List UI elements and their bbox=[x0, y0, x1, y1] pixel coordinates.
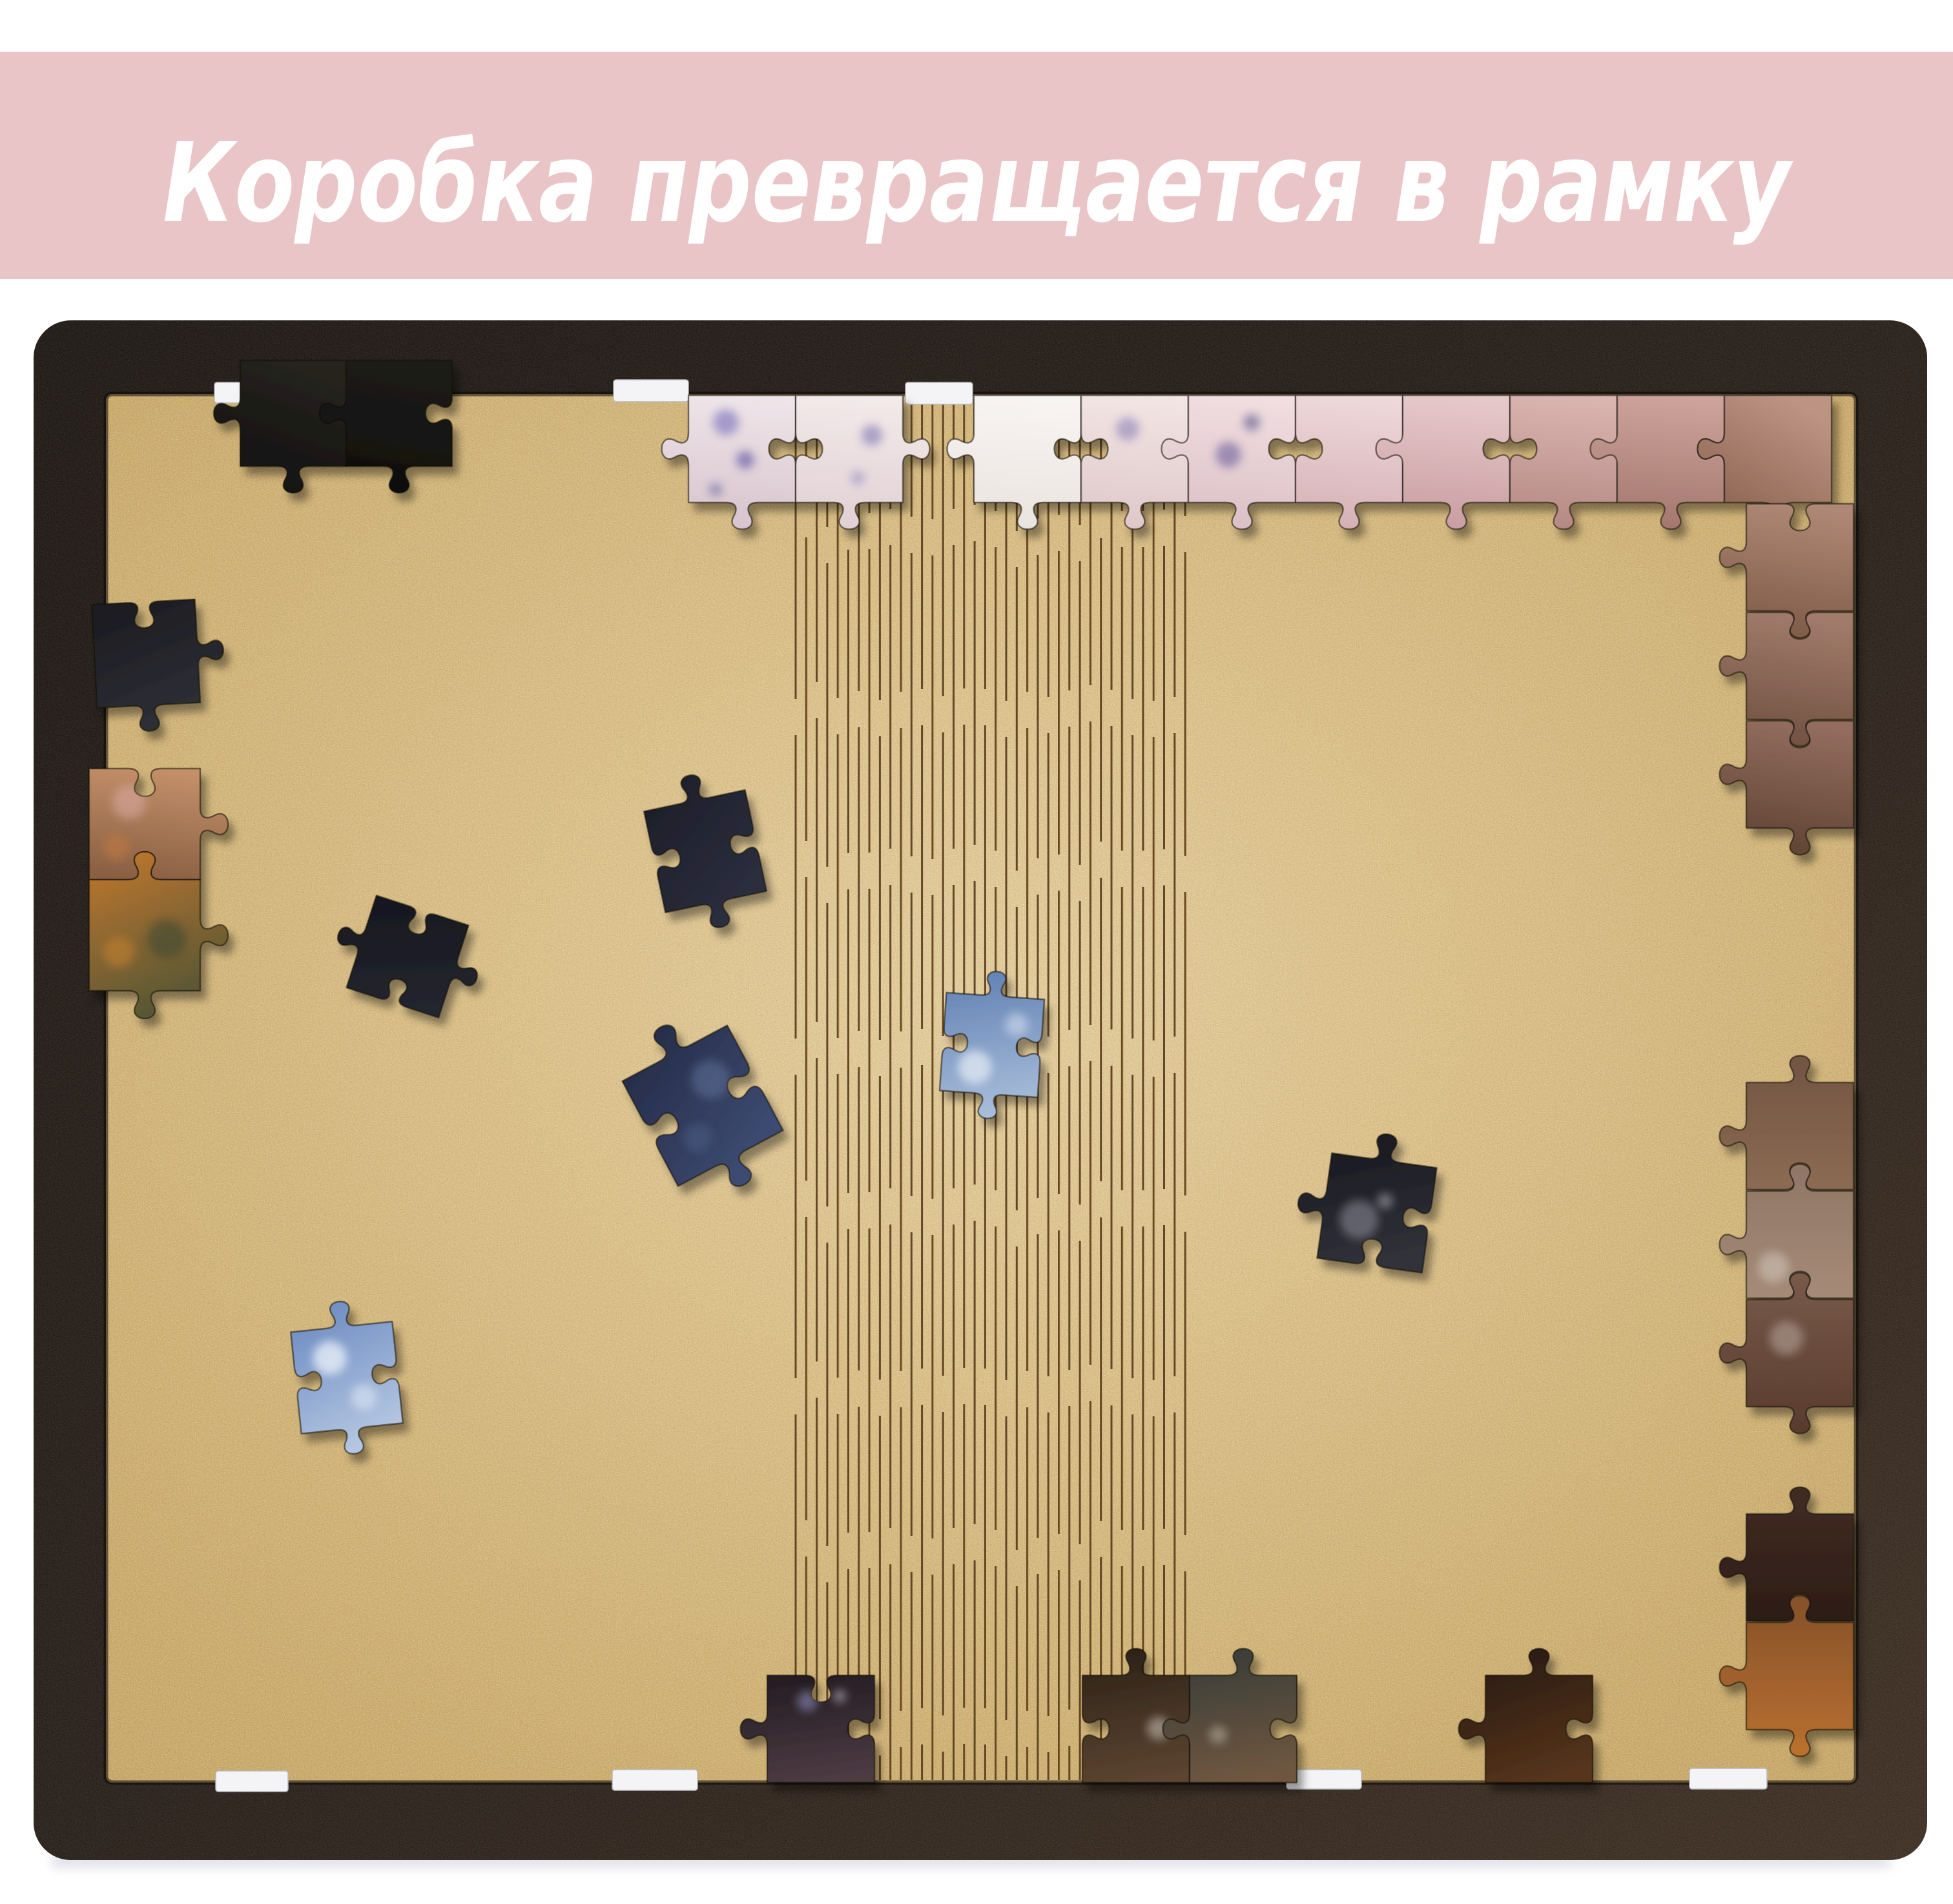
frame-slot bbox=[614, 380, 688, 402]
product-listing-image: Коробка превращается в рамку bbox=[0, 0, 1953, 1904]
piece-print-marks bbox=[1758, 1252, 1789, 1283]
scene-svg: Коробка превращается в рамку bbox=[0, 0, 1953, 1904]
frame-slot bbox=[1286, 1770, 1361, 1789]
piece-print-marks bbox=[1770, 1321, 1803, 1355]
piece-print-marks bbox=[1209, 1726, 1227, 1744]
frame-slot bbox=[1689, 1768, 1767, 1789]
frame-slot bbox=[216, 1771, 288, 1792]
product-photo bbox=[34, 320, 1927, 1868]
frame-slot bbox=[905, 382, 973, 404]
piece-print-marks bbox=[1116, 417, 1139, 440]
frame-slot bbox=[612, 1770, 697, 1790]
banner-text: Коробка превращается в рамку bbox=[163, 119, 1793, 247]
promo-banner: Коробка превращается в рамку bbox=[0, 52, 1953, 279]
